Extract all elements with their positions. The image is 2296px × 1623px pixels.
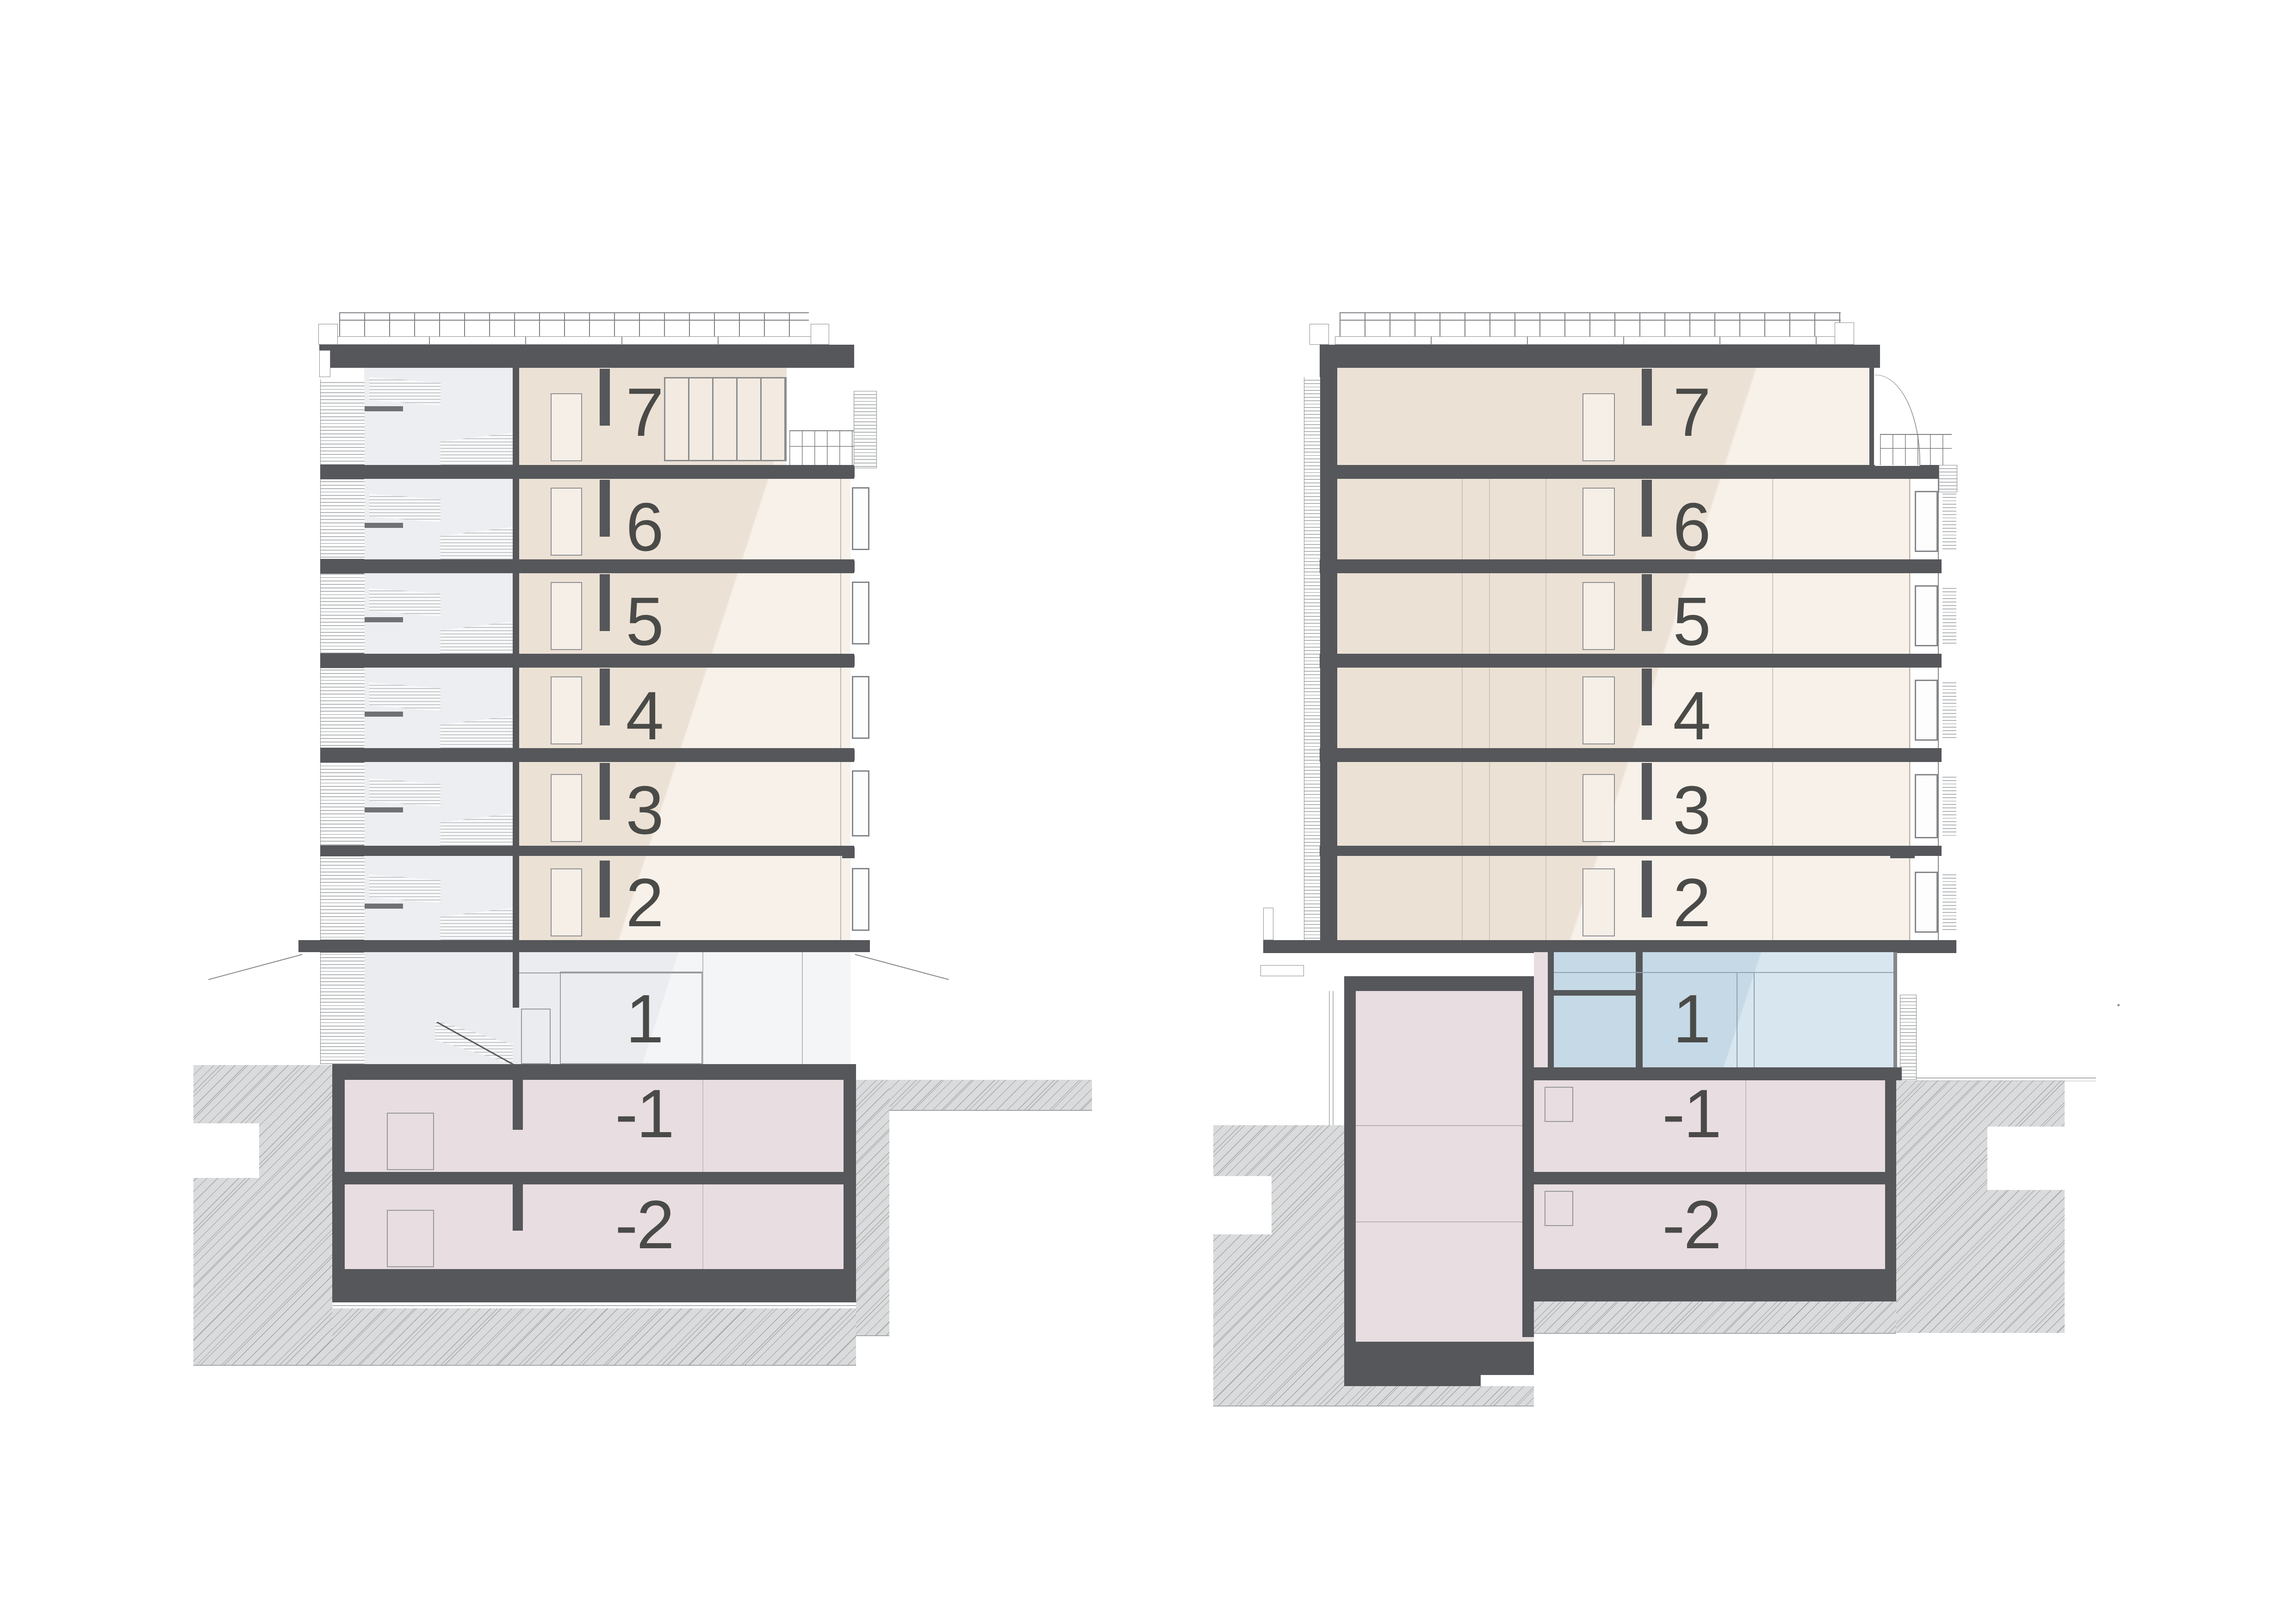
- stair-landing: [364, 807, 403, 812]
- floor-label: 5: [598, 588, 690, 656]
- facade-window: [852, 582, 869, 644]
- excavation-line: [1534, 1333, 1896, 1334]
- excavation-line: [856, 1335, 889, 1336]
- glazing-transom: [1554, 990, 1636, 996]
- canopy-parapet: [1263, 908, 1273, 940]
- floor-slab: [1320, 748, 1942, 762]
- sill-bracket: [842, 655, 855, 666]
- glass-line: [802, 952, 803, 1064]
- interior-line: [1462, 479, 1463, 940]
- sill-bracket: [1890, 561, 1915, 572]
- core-foundation-step: [1344, 1375, 1481, 1386]
- floor-label: 5: [1645, 588, 1738, 656]
- pavement-line: [1916, 1078, 2096, 1078]
- ground-notch: [1987, 1127, 2065, 1190]
- room-divider-line: [702, 1184, 703, 1269]
- floor-label: -1: [598, 1080, 690, 1148]
- ground-hatch-right-of-section-b: [1896, 1080, 2065, 1333]
- apartment-door: [551, 393, 582, 461]
- pavement-line: [1916, 1081, 2096, 1081]
- window-shutter: [1942, 491, 1956, 552]
- basement-wall: [1885, 1080, 1896, 1269]
- sill-bracket: [842, 466, 855, 477]
- section-drawing-canvas: 7 6 5 4 3 2 1 -1 -2: [0, 0, 2296, 1623]
- survey-dot: [2117, 1004, 2120, 1006]
- glazing-line: [1554, 972, 1897, 973]
- facade-window: [1915, 872, 1938, 933]
- apartment-door: [551, 676, 582, 744]
- glazing-facade-frame: [1893, 952, 1897, 1067]
- louver-stack: [854, 391, 877, 468]
- facade-window: [1915, 585, 1938, 646]
- floor-slab-with-canopy: [298, 940, 870, 952]
- floor-label: 1: [598, 985, 690, 1053]
- basement-wall-stub: [513, 1080, 523, 1130]
- apartment-door: [1582, 676, 1615, 744]
- roof-parapet-right: [1835, 322, 1854, 345]
- parapet-ladder: [319, 350, 330, 377]
- core-level-line: [1356, 1125, 1522, 1126]
- interior-line: [1489, 479, 1490, 940]
- stair-landing: [364, 904, 403, 909]
- louver-stack: [1900, 995, 1917, 1080]
- stair-landing: [364, 617, 403, 622]
- louver-slab-block: [320, 559, 364, 574]
- window-shutter: [1942, 774, 1956, 838]
- ground-hatch-left-of-section-a: [193, 1065, 332, 1366]
- facade-line: [1938, 479, 1939, 940]
- lightwell: [1320, 991, 1344, 1125]
- basement-slab: [345, 1172, 844, 1184]
- terrace-railing: [789, 430, 854, 465]
- core-sliver: [1534, 952, 1548, 1067]
- roof-parapet-left: [1309, 324, 1329, 345]
- facade-window: [1915, 774, 1938, 838]
- basement-wall: [332, 1064, 345, 1302]
- floor-slab: [1320, 654, 1942, 668]
- ground-slab: [332, 1064, 856, 1080]
- ground-hatch-under-section-a: [332, 1308, 856, 1366]
- glazing-mullion: [1548, 952, 1554, 1067]
- ground-notch: [1213, 1176, 1272, 1234]
- ground-line: [889, 1110, 1092, 1111]
- foundation-slab: [1522, 1269, 1896, 1301]
- floor-label: 4: [598, 682, 690, 750]
- apartment-door: [1582, 582, 1615, 650]
- setback-wall: [1869, 368, 1874, 465]
- ground-hatch-under-section-b: [1534, 1301, 1896, 1334]
- floor-label: 4: [1645, 682, 1738, 750]
- stairwell-wall-stub: [513, 952, 519, 1008]
- room-divider-line: [1745, 1184, 1746, 1269]
- roof-parapet-left: [318, 324, 338, 345]
- roof-slab: [319, 345, 854, 368]
- apartment-door: [551, 868, 582, 936]
- floor-slab-terrace: [1330, 465, 1956, 479]
- core-level-line: [1356, 1221, 1522, 1222]
- stair-landing: [364, 712, 403, 717]
- interior-line: [1772, 479, 1773, 940]
- apartment-door: [551, 774, 582, 842]
- terrace-railing: [1880, 434, 1952, 465]
- terrace-louver-block: [1939, 465, 1957, 492]
- floor-label: 6: [598, 493, 690, 562]
- roof-parapet-band: [333, 336, 814, 345]
- interior-line: [1909, 479, 1910, 940]
- stairwell-door: [521, 1009, 551, 1064]
- excavation-line: [1213, 1406, 1534, 1406]
- service-core: [1344, 991, 1534, 1342]
- basement-wall-stub: [513, 1184, 523, 1231]
- interior-line: [1545, 479, 1546, 940]
- drainage-line: [332, 1305, 856, 1306]
- basement-wall: [844, 1064, 856, 1302]
- floor-label: 2: [1645, 869, 1738, 937]
- floor-slab: [1320, 559, 1942, 573]
- apartment-door: [1582, 868, 1615, 936]
- window-shutter: [1942, 680, 1956, 741]
- sill-bracket: [1890, 942, 1915, 953]
- floor-label: 2: [598, 869, 690, 937]
- louver-slab-block: [320, 748, 364, 762]
- floor-label: 7: [1645, 378, 1738, 447]
- louver-slab-block: [320, 465, 364, 479]
- floor-label: 3: [1645, 776, 1738, 845]
- floor-label: 3: [598, 776, 690, 845]
- pergola-posts: [339, 312, 809, 336]
- basement-door: [1545, 1191, 1573, 1226]
- glass-line: [702, 952, 703, 1064]
- floor-slab: [364, 465, 854, 479]
- lightwell-line: [1329, 991, 1330, 1125]
- core-foundation: [1344, 1342, 1534, 1375]
- ground-hatch-right-of-section-a: [856, 1080, 889, 1336]
- sill-bracket: [1890, 750, 1915, 761]
- window-shutter: [1942, 872, 1956, 933]
- stair-landing: [364, 406, 403, 411]
- canopy-stay: [855, 954, 949, 980]
- basement-door: [387, 1113, 434, 1170]
- canopy-stay: [208, 954, 302, 980]
- sill-bracket: [1890, 847, 1915, 858]
- floor-label: -2: [1645, 1191, 1738, 1259]
- ground-hatch-left-of-section-b: [1213, 1125, 1344, 1406]
- roof-parapet-right: [811, 324, 829, 345]
- facade-window: [852, 676, 869, 739]
- excavation-line: [193, 1365, 856, 1366]
- stair-landing: [364, 523, 403, 528]
- ground-hatch-band-a: [889, 1080, 1092, 1110]
- louver-facade-strip: [1304, 377, 1320, 942]
- roof-parapet-band: [1335, 336, 1844, 345]
- floor-label: -1: [1645, 1080, 1738, 1148]
- facade-window: [852, 770, 869, 836]
- floor-slab: [364, 846, 854, 856]
- louver-slab-block: [320, 845, 364, 856]
- basement-door: [1545, 1087, 1573, 1122]
- core-wall: [1344, 991, 1356, 1342]
- floor-label: 7: [598, 378, 690, 447]
- sill-bracket: [1890, 655, 1915, 666]
- ground-notch: [193, 1123, 259, 1178]
- sill-bracket: [842, 750, 855, 761]
- floor-label: 1: [1645, 985, 1738, 1053]
- apartment-door: [551, 582, 582, 650]
- room-divider-line: [702, 1080, 703, 1172]
- ground-hatch-under-core-b: [1344, 1386, 1534, 1406]
- facade-window: [1915, 491, 1938, 552]
- foundation-slab: [332, 1269, 856, 1302]
- glazing-line: [1754, 973, 1755, 1067]
- lightwell-line: [1333, 991, 1334, 1125]
- floor-slab-with-canopy: [1263, 940, 1956, 953]
- apartment-door: [1582, 774, 1615, 842]
- floor-label: 6: [1645, 493, 1738, 562]
- louver-slab-block: [320, 653, 364, 668]
- facade-window: [1915, 680, 1938, 741]
- louver-facade-strip: [320, 379, 365, 1064]
- floor-label: -2: [598, 1191, 690, 1259]
- core-top-band: [1344, 976, 1534, 991]
- floor-slab: [1320, 846, 1942, 856]
- facade-window: [852, 487, 869, 550]
- facade-window: [852, 868, 869, 931]
- basement-door: [387, 1210, 434, 1267]
- apartment-door: [551, 488, 582, 556]
- interior-line: [840, 479, 841, 940]
- canopy-ledge: [1260, 965, 1304, 976]
- glazing-mullion: [1636, 952, 1643, 1067]
- roof-slab: [1320, 345, 1880, 368]
- window-shutter: [1942, 585, 1956, 646]
- pergola-posts: [1340, 312, 1841, 336]
- sill-bracket: [842, 847, 855, 858]
- room-divider-line: [1745, 1080, 1746, 1172]
- apartment-door: [1582, 488, 1615, 556]
- apartment-door: [1582, 393, 1615, 461]
- basement-slab: [1534, 1172, 1885, 1184]
- sill-bracket: [842, 561, 855, 572]
